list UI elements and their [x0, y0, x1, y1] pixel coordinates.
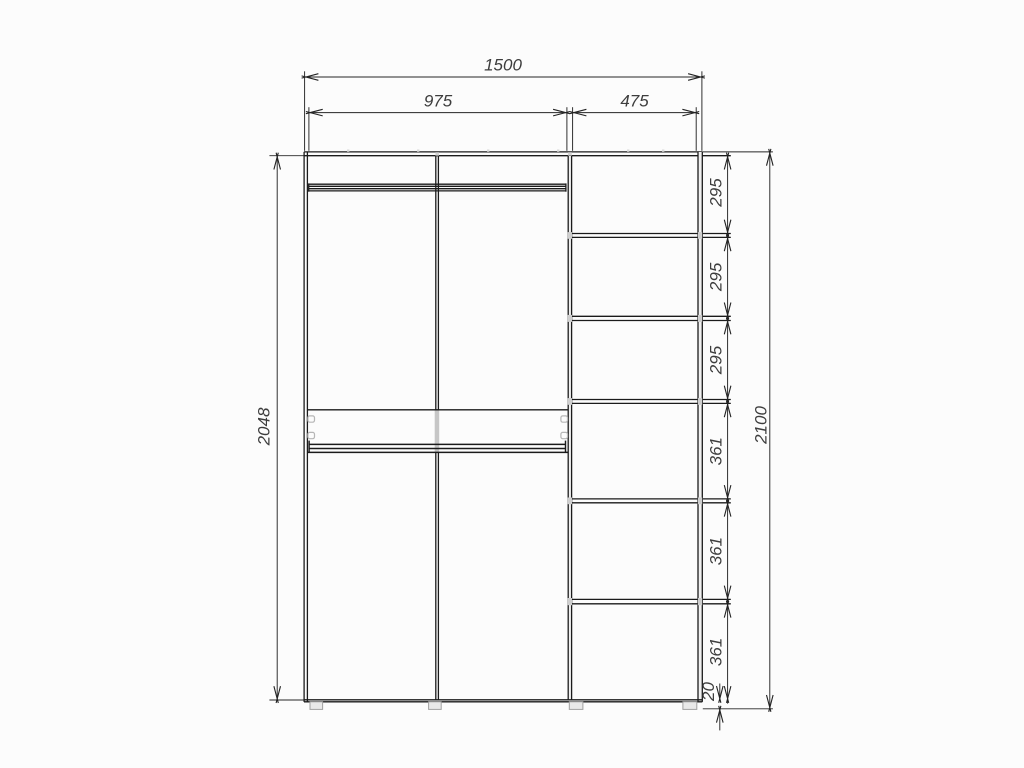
- svg-text:361: 361: [706, 437, 725, 465]
- svg-text:295: 295: [706, 178, 725, 208]
- svg-text:975: 975: [424, 92, 453, 111]
- svg-text:295: 295: [706, 262, 725, 292]
- svg-text:1500: 1500: [484, 56, 522, 75]
- svg-text:2100: 2100: [752, 406, 771, 445]
- svg-text:361: 361: [706, 638, 725, 666]
- svg-text:20: 20: [699, 682, 718, 702]
- svg-text:2048: 2048: [254, 407, 273, 446]
- svg-text:361: 361: [706, 537, 725, 565]
- svg-text:475: 475: [620, 92, 649, 111]
- svg-text:295: 295: [706, 345, 725, 375]
